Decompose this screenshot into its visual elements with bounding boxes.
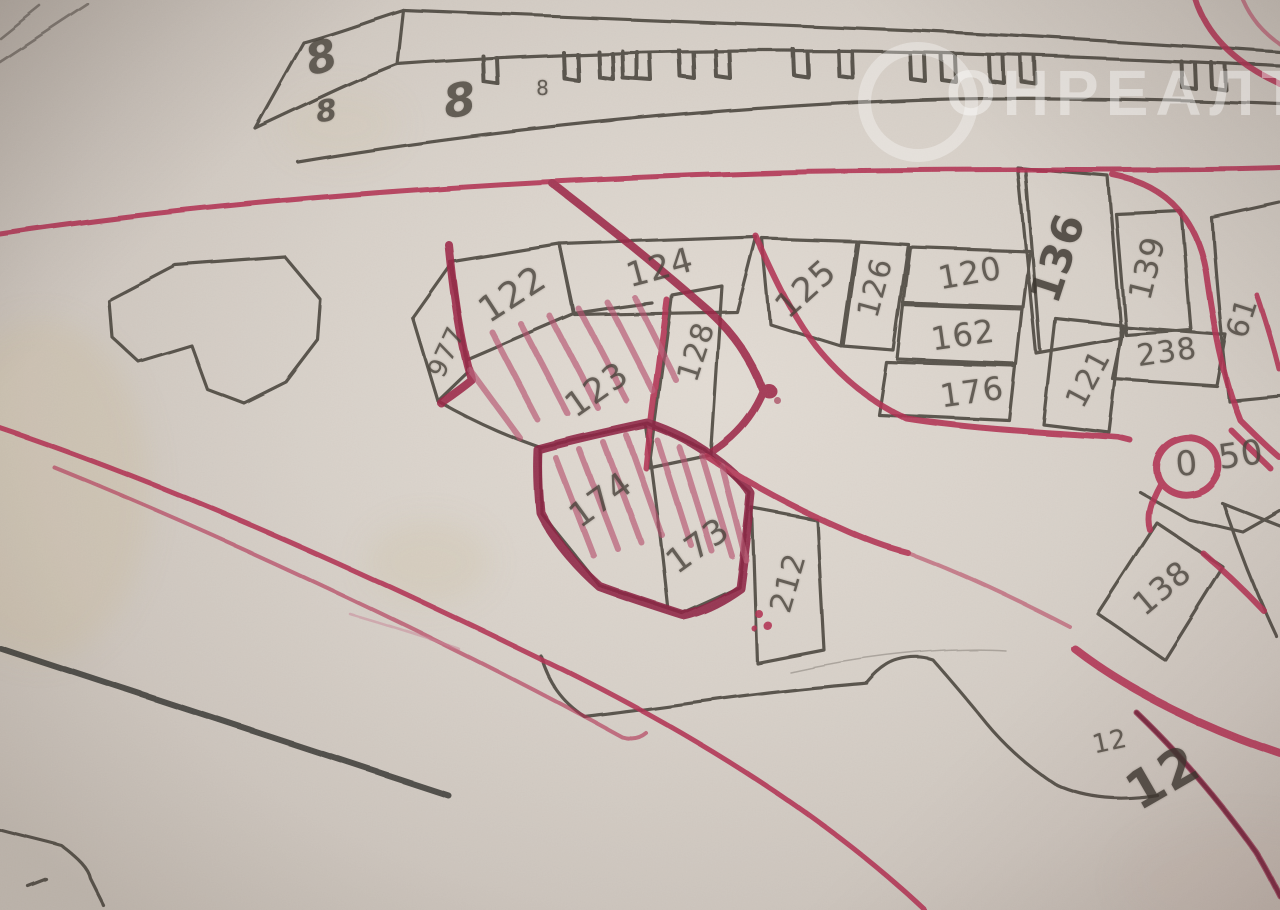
building-label-8-d: 8 xyxy=(536,78,550,98)
photo-grain xyxy=(0,0,1280,910)
plot-label-120: 120 xyxy=(936,252,1005,295)
building-label-8-c: 8 xyxy=(440,75,479,125)
plot-label-238: 238 xyxy=(1135,334,1199,372)
building-label-8-b: 8 xyxy=(314,96,340,129)
map-linework-layer xyxy=(0,0,1280,910)
cadastral-photo: 977 122 124 123 128 125 126 120 162 176 … xyxy=(0,0,1280,910)
plot-label-162: 162 xyxy=(929,315,997,356)
dim-label-0: 0 xyxy=(1174,446,1200,482)
plot-label-176: 176 xyxy=(938,372,1006,413)
dim-label-50: 50 xyxy=(1216,435,1266,475)
block-label-12-small: 12 xyxy=(1090,726,1130,759)
